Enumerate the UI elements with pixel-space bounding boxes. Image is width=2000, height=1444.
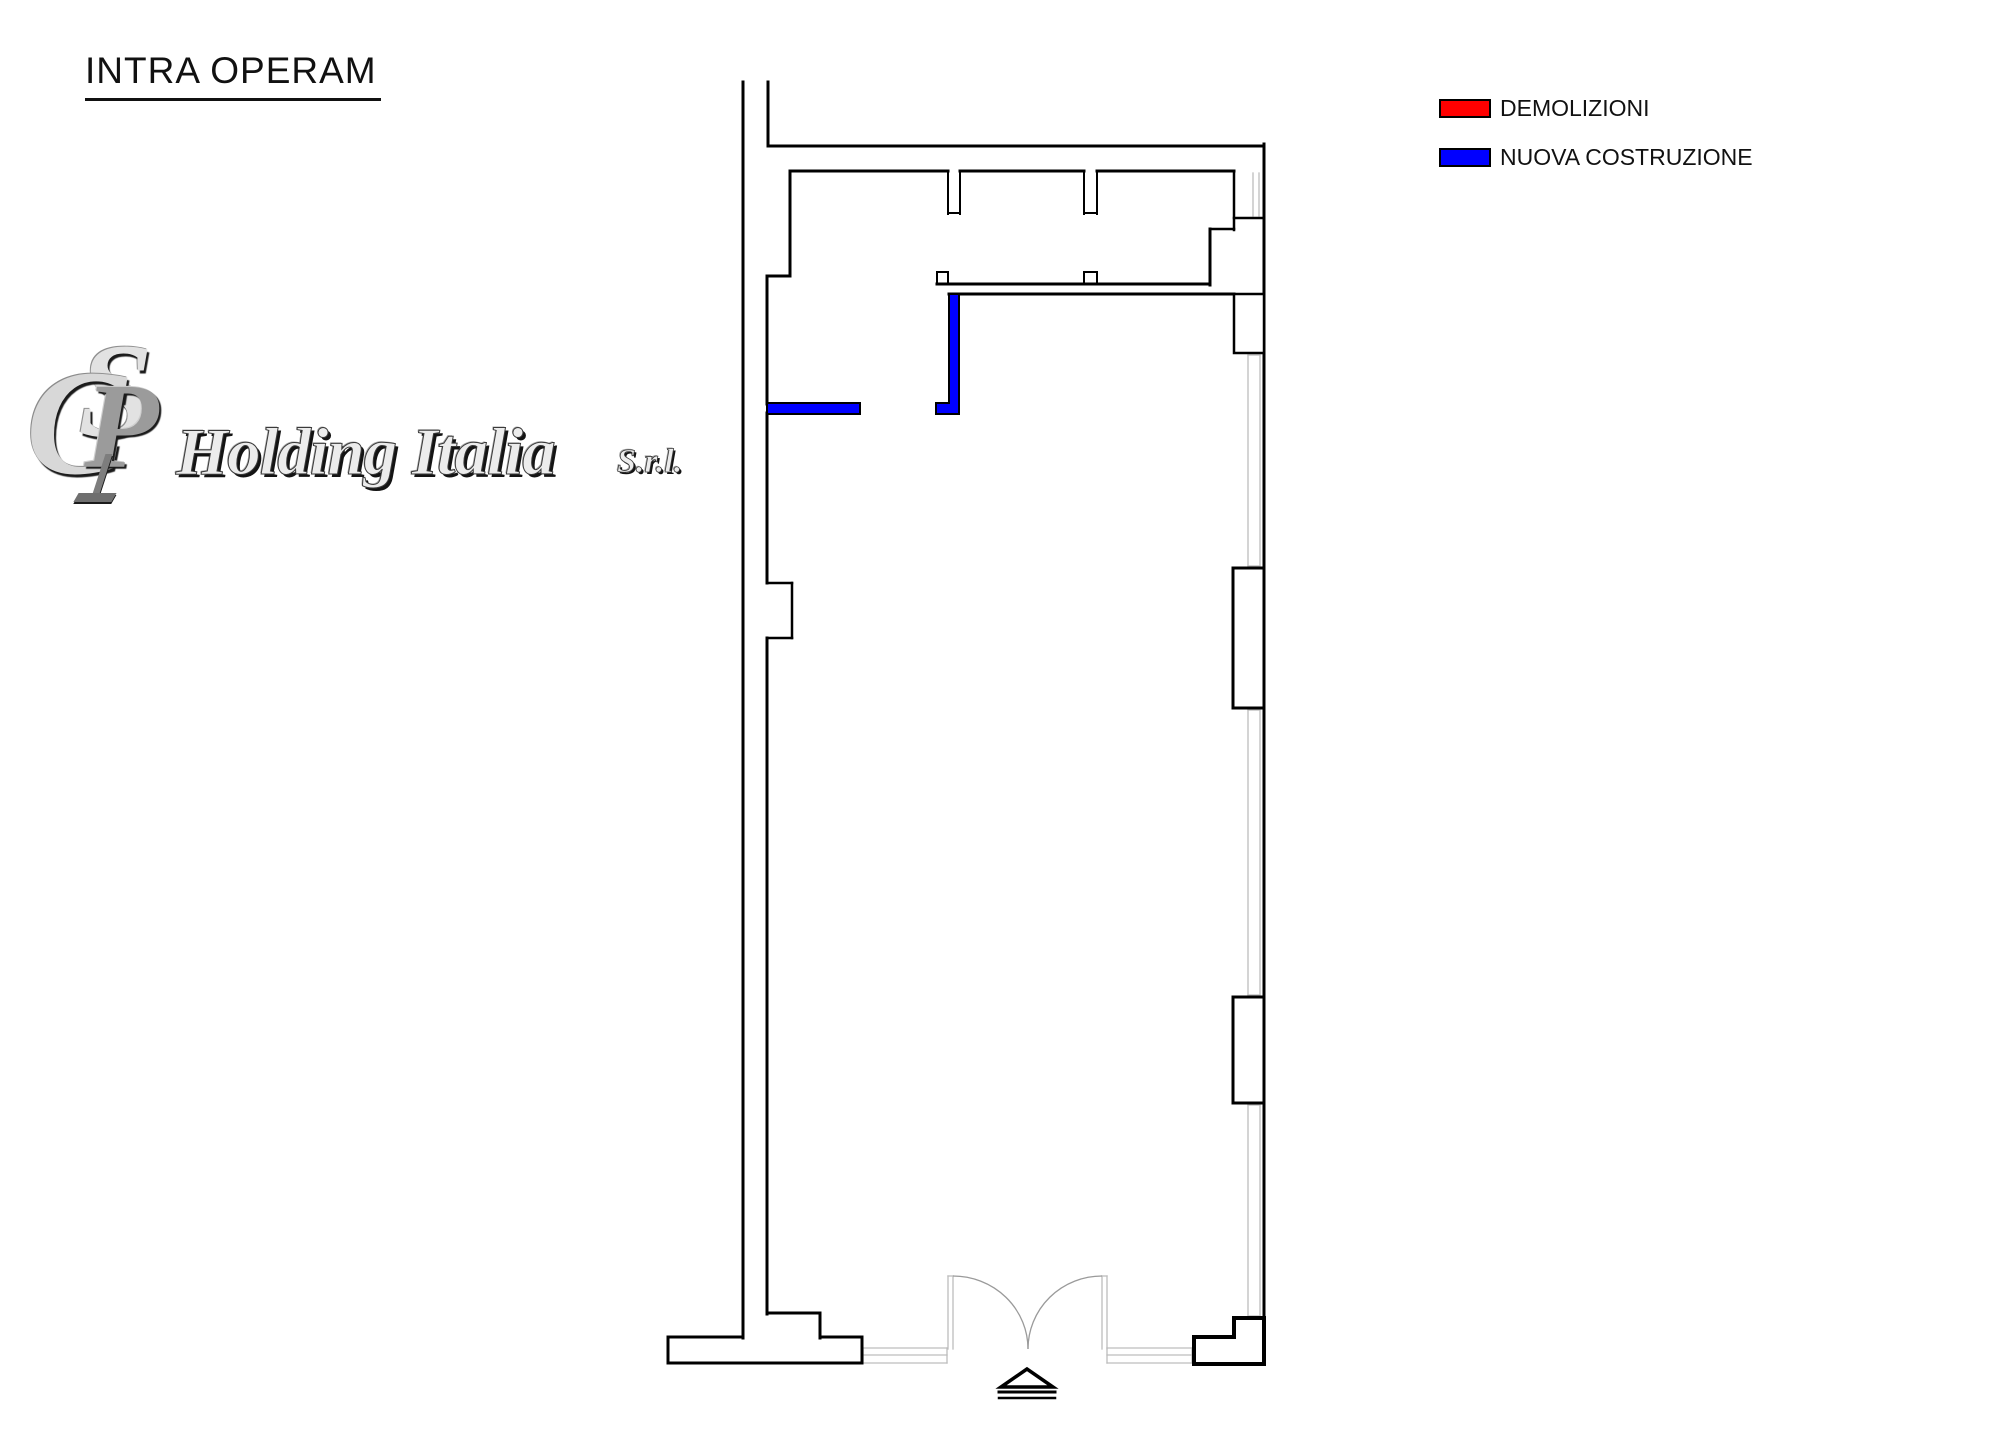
door-swing-layer <box>953 1276 1102 1349</box>
company-logo: S C P Holding Italia S.r.l. <box>0 330 760 530</box>
logo-company-suffix: S.r.l. <box>617 443 682 481</box>
window-pier <box>1234 294 1264 353</box>
walls-layer <box>668 82 1264 1364</box>
glazing-layer <box>863 173 1260 1363</box>
new-construction-wall <box>936 294 959 414</box>
window-pier <box>1233 568 1264 708</box>
new-construction-wall <box>767 403 860 414</box>
floor-plan <box>0 0 2000 1444</box>
door-swing-arc <box>953 1276 1028 1349</box>
entrance-marker <box>999 1369 1055 1398</box>
logo-monogram-foot <box>73 493 116 502</box>
new-construction-layer <box>767 294 959 414</box>
window-pier <box>1233 997 1264 1103</box>
logo-monogram-letter-p: P <box>84 366 159 488</box>
entrance-triangle <box>1001 1369 1053 1387</box>
corner-wall-block <box>1194 1318 1264 1364</box>
door-swing-arc <box>1028 1276 1102 1349</box>
drawing-sheet: INTRA OPERAM DEMOLIZIONI NUOVA COSTRUZIO… <box>0 0 2000 1444</box>
logo-company-name: Holding Italia <box>176 414 555 491</box>
